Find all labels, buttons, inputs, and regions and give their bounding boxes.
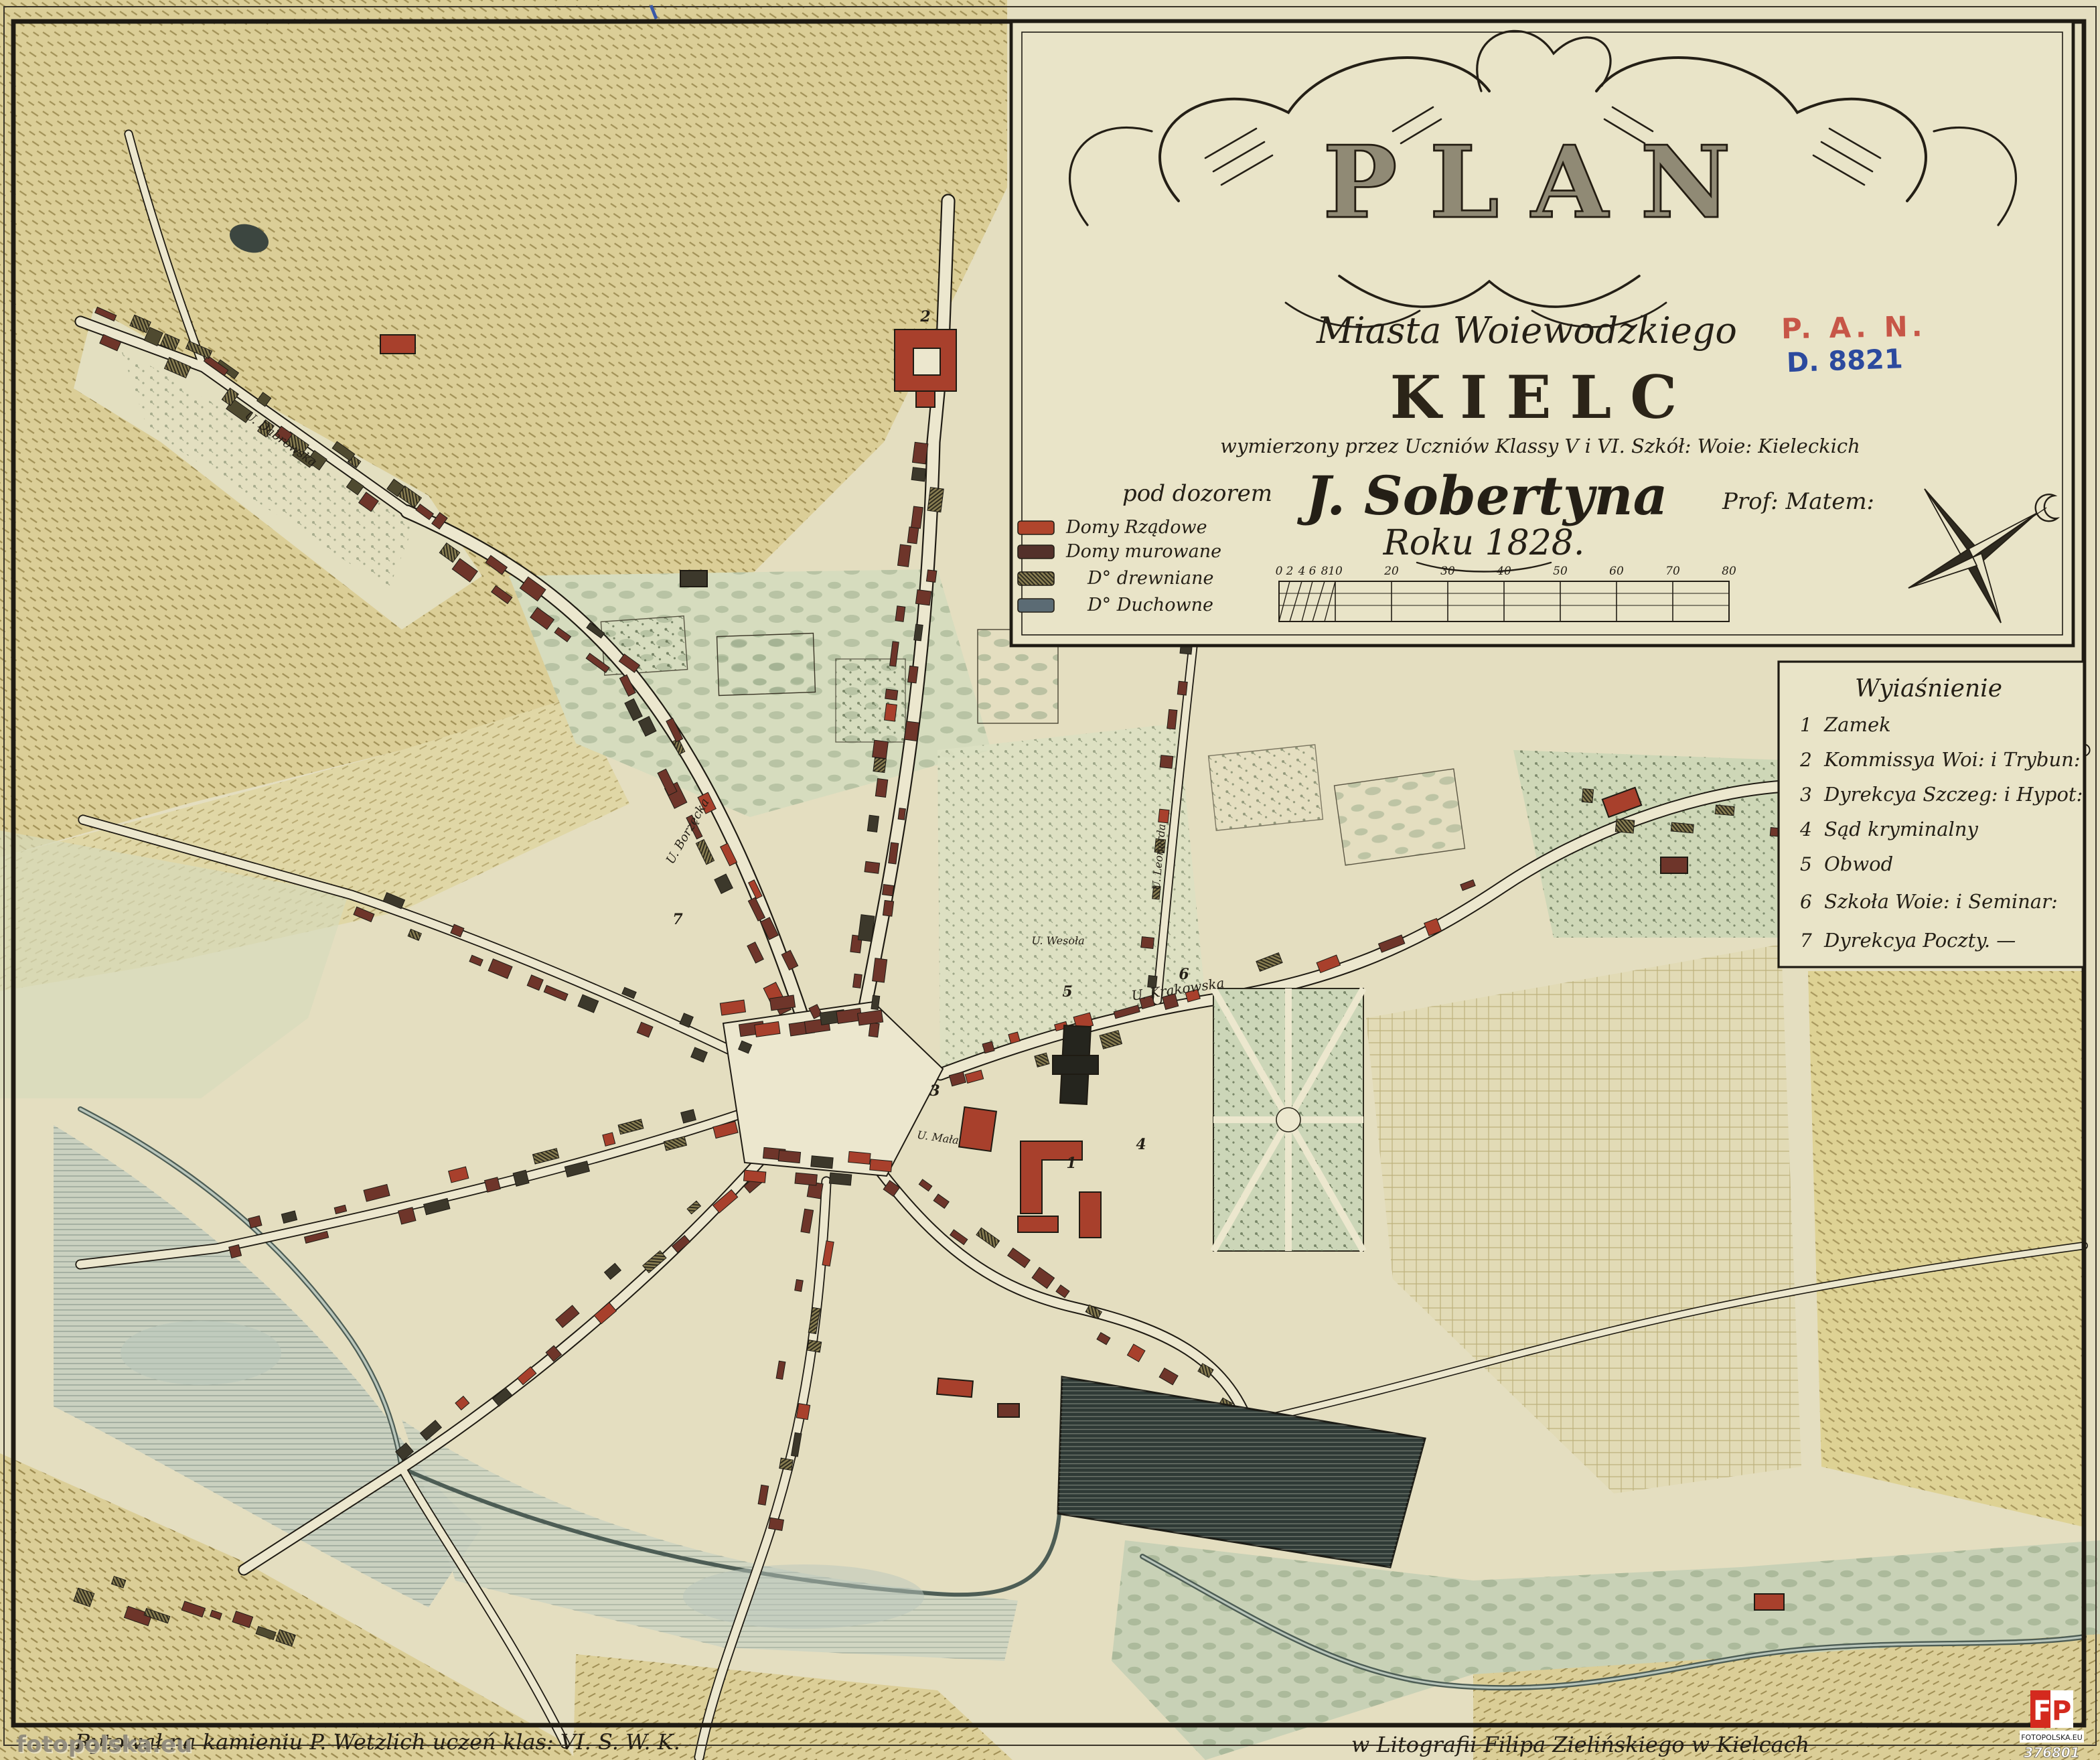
scale-tick-label: 4	[1298, 565, 1306, 578]
building	[873, 958, 887, 982]
explanation-number: 5	[1800, 853, 1812, 875]
building	[848, 1151, 871, 1164]
explanation-label: Dyrekcya Poczty. —	[1823, 929, 2016, 952]
explanation-label: Sąd kryminalny	[1824, 818, 1978, 840]
scale-tick-label: 80	[1722, 565, 1736, 578]
building	[885, 689, 898, 700]
house-by-pond-2	[998, 1404, 1019, 1417]
credit-lithography: w Litografii Filipa Zielińskiego w Kielc…	[1351, 1732, 1809, 1757]
building	[898, 544, 911, 567]
building	[913, 442, 928, 463]
building-number: 6	[1179, 966, 1189, 983]
legend-label: Domy murowane	[1065, 541, 1221, 562]
explanation-label: Zamek	[1823, 713, 1891, 736]
scale-tick-label: 0	[1276, 565, 1283, 578]
pan-stamp: P. A. N.	[1781, 310, 1927, 346]
building	[829, 1173, 851, 1185]
explanation-label: Szkoła Woie: i Seminar:	[1824, 890, 2058, 913]
explanation-number: 4	[1799, 818, 1812, 840]
building	[867, 815, 879, 832]
castle-wing-south	[1018, 1216, 1058, 1232]
building-number: 1	[1066, 1155, 1076, 1172]
scale-tick-label: 2	[1286, 565, 1294, 578]
explanation-label: Kommissya Woi: i Trybun:	[1823, 748, 2081, 771]
commission-wing	[916, 391, 935, 407]
explanation-number: 6	[1800, 891, 1812, 913]
building	[875, 779, 887, 798]
scale-tick-label: 30	[1440, 565, 1455, 578]
building	[914, 624, 923, 641]
building	[898, 808, 905, 820]
building	[885, 704, 897, 722]
legend-swatch	[1018, 572, 1054, 585]
castle-wing-east	[1079, 1192, 1101, 1238]
building	[779, 1458, 793, 1470]
pond-small-west	[121, 1321, 281, 1385]
building-number: 7	[672, 911, 683, 928]
building	[870, 1159, 892, 1172]
legend-swatch	[1018, 545, 1054, 559]
explanation-number: 1	[1800, 714, 1812, 736]
explanation-label: Obwod	[1824, 853, 1893, 875]
garden-plot	[717, 634, 816, 696]
commission-courtyard	[913, 348, 940, 375]
building	[895, 606, 905, 621]
supervision-prefix: pod dozorem	[1122, 480, 1272, 507]
legend-label: Domy Rządowe	[1065, 517, 1207, 538]
building	[904, 721, 919, 741]
building	[1715, 805, 1734, 816]
scale-tick-label: 70	[1665, 565, 1680, 578]
scale-tick-label: 10	[1328, 565, 1343, 578]
building	[926, 570, 936, 583]
building	[811, 1156, 833, 1169]
supervisor-title: Prof: Matem:	[1722, 488, 1874, 515]
building	[808, 1340, 822, 1352]
garden-plot	[1209, 745, 1323, 830]
scale-tick-label: 50	[1553, 565, 1568, 578]
building	[853, 974, 862, 988]
watermark-site: fotopolska.eu	[16, 1731, 192, 1758]
city-name: KIELC	[1390, 362, 1696, 432]
explanation-panel	[1779, 662, 2084, 967]
explanation-number: 3	[1800, 784, 1812, 806]
building	[883, 900, 893, 916]
garden-plot	[1335, 769, 1465, 865]
legend-swatch	[1018, 599, 1054, 612]
surveyed-by-line: wymierzony przez Uczniów Klassy V i VI. …	[1220, 435, 1860, 457]
explanation-number: 7	[1800, 930, 1812, 952]
house-southeast	[1754, 1594, 1784, 1610]
building	[871, 995, 880, 1009]
photo-id: 376801	[2024, 1745, 2080, 1760]
explanation-label: Dyrekcya Szczeg: i Hypot:	[1823, 783, 2083, 806]
legend-swatch	[1018, 521, 1054, 534]
cartouche: PLAN Miasta Woiewodzkiego KIELC wymierzo…	[1011, 21, 2073, 646]
manor-north	[680, 571, 707, 587]
building	[796, 1404, 810, 1420]
explanation-box: Wyiaśnienie 1Zamek2Kommissya Woi: i Tryb…	[1779, 662, 2084, 967]
building	[907, 527, 919, 544]
garden-plot	[836, 659, 905, 742]
building	[769, 1518, 784, 1530]
map-title: PLAN	[1323, 124, 1762, 240]
building	[915, 590, 931, 605]
building	[873, 757, 886, 772]
building-number: 4	[1136, 1136, 1146, 1153]
house-by-pond	[937, 1378, 973, 1397]
inventory-number-stamp: D. 8821	[1786, 344, 1903, 378]
building	[743, 1170, 765, 1183]
building	[911, 467, 926, 482]
building	[778, 1151, 800, 1163]
street-label: U. Wesoła	[1031, 934, 1084, 947]
building	[883, 885, 894, 896]
building	[795, 1173, 817, 1185]
building-number: 2	[919, 308, 930, 325]
scale-tick-label: 40	[1496, 565, 1511, 578]
building	[1167, 709, 1177, 729]
building	[1160, 755, 1173, 769]
formal-garden	[1213, 988, 1363, 1251]
building	[908, 666, 918, 683]
legend-label: D° Duchowne	[1087, 595, 1213, 615]
supervisor-name: J. Sobertyna	[1297, 464, 1668, 527]
scale-tick-label: 6	[1309, 565, 1317, 578]
explanation-number: 2	[1799, 749, 1812, 771]
historic-map-page: U. DąbrowskaU. BorzęckaU. WesołaU. Leona…	[0, 0, 2100, 1760]
cathedral-transept	[1053, 1055, 1098, 1074]
building	[513, 1170, 529, 1186]
building	[1177, 681, 1187, 695]
logo-banner-text: FOTOPOLSKA.EU	[2021, 1733, 2083, 1742]
seminary-building	[959, 1107, 996, 1151]
subtitle-miasta: Miasta Woiewodzkiego	[1316, 309, 1737, 352]
building	[865, 861, 880, 873]
building	[795, 1280, 804, 1292]
building	[1615, 819, 1634, 833]
building	[1582, 789, 1593, 803]
logo-letter-f: F	[2033, 1696, 2051, 1727]
scale-tick-label: 60	[1609, 565, 1624, 578]
building	[869, 1023, 879, 1037]
garden-rond-point	[1276, 1108, 1300, 1132]
scale-tick-label: 8	[1321, 565, 1329, 578]
building-number: 5	[1062, 983, 1072, 1001]
map-canvas: U. DąbrowskaU. BorzęckaU. WesołaU. Leona…	[0, 0, 2100, 1760]
pond-small-south	[683, 1564, 924, 1629]
explanation-title: Wyiaśnienie	[1855, 675, 2002, 703]
building	[1008, 1032, 1020, 1043]
government-house-northwest	[380, 335, 415, 354]
building	[1141, 937, 1154, 949]
building	[1671, 822, 1694, 833]
building	[927, 488, 944, 512]
year-line: Roku 1828.	[1383, 523, 1585, 563]
legend-label: D° drewniane	[1087, 568, 1214, 589]
building	[1158, 809, 1169, 823]
building-number: 3	[929, 1082, 940, 1100]
scale-tick-label: 20	[1383, 565, 1399, 578]
building	[873, 740, 889, 759]
masonry-house-east	[1661, 857, 1687, 873]
logo-letter-p: P	[2052, 1696, 2071, 1727]
building	[858, 915, 875, 942]
